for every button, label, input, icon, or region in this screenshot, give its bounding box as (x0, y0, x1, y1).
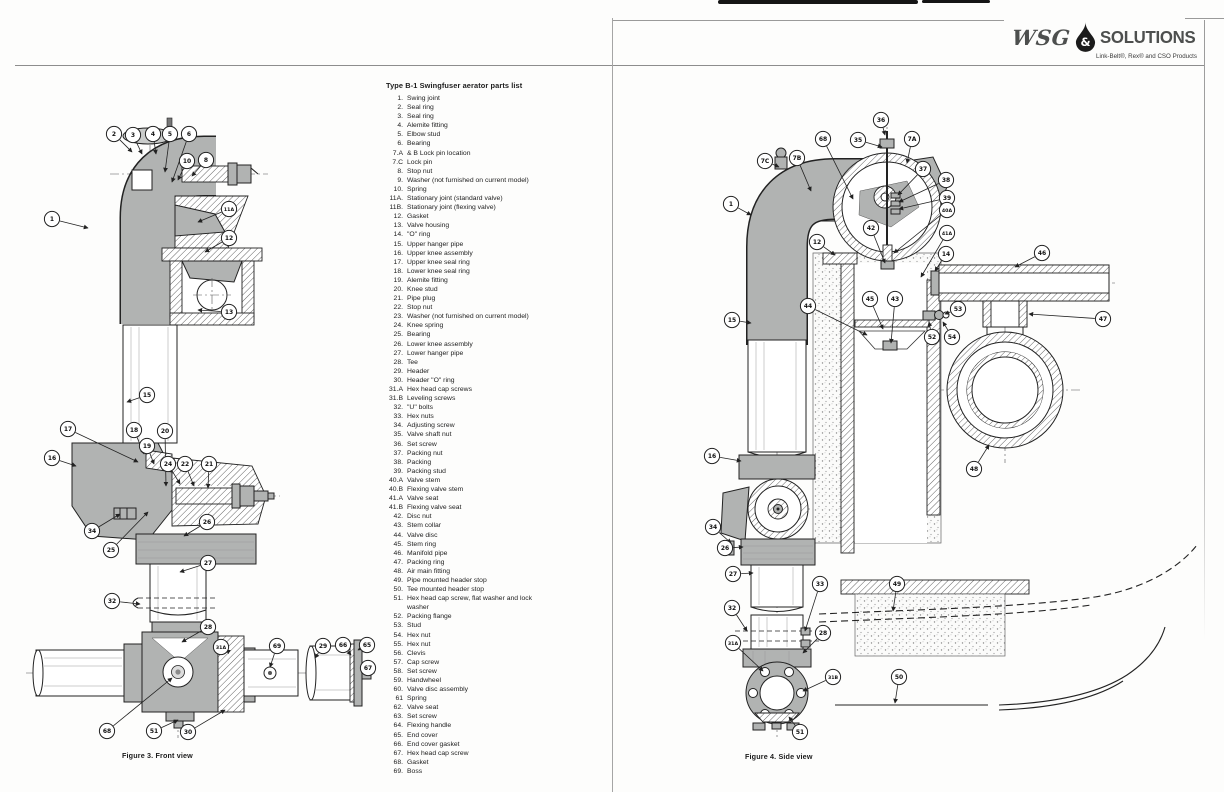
callout-35: 35 (850, 132, 882, 147)
callout-31A: 31A (213, 639, 228, 654)
svg-text:16: 16 (708, 453, 716, 460)
part-number: 23. (386, 312, 403, 321)
svg-text:3: 3 (131, 132, 135, 139)
part-label: Washer (not furnished on current model) (407, 312, 553, 321)
part-number: 22. (386, 303, 403, 312)
part-label: Hex head cap screw, flat washer and lock… (407, 594, 553, 612)
svg-text:38: 38 (942, 177, 950, 184)
part-number: 10. (386, 185, 403, 194)
part-label: Bearing (407, 139, 553, 148)
part-number: 12. (386, 212, 403, 221)
parts-list-item: 48. Air main fitting (386, 567, 614, 576)
part-label: Hex head cap screw (407, 749, 553, 758)
parts-list-item: 53. Stud (386, 621, 614, 630)
part-label: Tee mounted header stop (407, 585, 553, 594)
part-label: "U" bolts (407, 403, 553, 412)
svg-text:34: 34 (88, 528, 96, 535)
svg-text:68: 68 (103, 728, 111, 735)
figure4-side-view-drawing: 36357A687C7B37383940A41A1121442444543155… (695, 95, 1210, 745)
parts-list-item: 56. Clevis (386, 649, 614, 658)
part-label: Stationary joint (standard valve) (407, 194, 553, 203)
part-number: 55. (386, 640, 403, 649)
stem-collar (883, 341, 897, 350)
parts-list-item: 64. Flexing handle (386, 721, 614, 730)
part-number: 25. (386, 330, 403, 339)
parts-list-item: 7.C Lock pin (386, 158, 614, 167)
parts-list-item: 60. Valve disc assembly (386, 685, 614, 694)
part-label: Pipe mounted header stop (407, 576, 553, 585)
part-number: 28. (386, 358, 403, 367)
parts-list-item: 44. Valve disc (386, 531, 614, 540)
callout-47: 47 (1029, 311, 1111, 326)
part-number: 40.B (386, 485, 403, 494)
parts-list-item: 36. Set screw (386, 440, 614, 449)
part-label: & B Lock pin location (407, 149, 553, 158)
top-edge-dash-right (1185, 18, 1224, 19)
parts-list-item: 69. Boss (386, 767, 614, 776)
callout-12: 12 (809, 234, 835, 255)
part-label: Tee (407, 358, 553, 367)
part-label: Header (407, 367, 553, 376)
part-label: End cover (407, 731, 553, 740)
svg-text:42: 42 (867, 225, 875, 232)
part-label: Flexing valve seat (407, 503, 553, 512)
svg-text:15: 15 (143, 392, 151, 399)
parts-list-item: 6. Bearing (386, 139, 614, 148)
svg-text:5: 5 (168, 131, 172, 138)
svg-text:69: 69 (273, 643, 281, 650)
part-number: 44. (386, 531, 403, 540)
parts-list-item: 34. Adjusting screw (386, 421, 614, 430)
parts-list-item: 9. Washer (not furnished on current mode… (386, 176, 614, 185)
parts-list-item: 61 Spring (386, 694, 614, 703)
part-label: Set screw (407, 712, 553, 721)
part-label: Spring (407, 694, 553, 703)
part-label: Lock pin (407, 158, 553, 167)
parts-list-item: 37. Packing nut (386, 449, 614, 458)
svg-text:18: 18 (130, 427, 138, 434)
part-number: 50. (386, 585, 403, 594)
adjusting-screw (114, 508, 136, 519)
part-label: Stem ring (407, 540, 553, 549)
parts-list-item: 38. Packing (386, 458, 614, 467)
svg-text:13: 13 (225, 309, 233, 316)
part-label: Flexing handle (407, 721, 553, 730)
part-label: Upper knee assembly (407, 249, 553, 258)
svg-text:51: 51 (150, 728, 158, 735)
end-cover-gasket (350, 644, 354, 702)
callout-48: 48 (966, 445, 989, 477)
part-number: 1. (386, 94, 403, 103)
parts-list-item: 5. Elbow stud (386, 130, 614, 139)
part-number: 69. (386, 767, 403, 776)
logo-tagline: Link-Belt®, Rex® and CSO Products (1007, 53, 1199, 60)
part-label: Hex nuts (407, 412, 553, 421)
part-label: Spring (407, 185, 553, 194)
part-number: 33. (386, 412, 403, 421)
svg-text:43: 43 (891, 296, 899, 303)
callout-26: 26 (717, 540, 743, 555)
part-number: 14. (386, 230, 403, 239)
svg-text:27: 27 (204, 560, 212, 567)
part-label: Flexing valve stem (407, 485, 553, 494)
parts-list-title: Type B-1 Swingfuser aerator parts list (386, 81, 614, 90)
logo-ampersand: & (1080, 35, 1090, 49)
part-number: 21. (386, 294, 403, 303)
part-label: Lower knee seal ring (407, 267, 553, 276)
svg-text:7C: 7C (761, 158, 770, 165)
svg-text:46: 46 (1038, 250, 1046, 257)
parts-list-item: 45. Stem ring (386, 540, 614, 549)
part-number: 13. (386, 221, 403, 230)
svg-text:22: 22 (181, 461, 189, 468)
svg-text:50: 50 (895, 674, 903, 681)
pipe-plug (254, 491, 268, 501)
parts-list-item: 11A. Stationary joint (standard valve) (386, 194, 614, 203)
parts-list-item: 40.B Flexing valve stem (386, 485, 614, 494)
part-number: 5. (386, 130, 403, 139)
housing-gasket (823, 253, 857, 264)
svg-text:68: 68 (819, 136, 827, 143)
part-number: 27. (386, 349, 403, 358)
part-label: Pipe plug (407, 294, 553, 303)
svg-text:66: 66 (339, 642, 347, 649)
svg-text:35: 35 (854, 137, 862, 144)
svg-text:53: 53 (954, 306, 962, 313)
part-label: Knee stud (407, 285, 553, 294)
part-number: 63. (386, 712, 403, 721)
parts-list-item: 18. Lower knee seal ring (386, 267, 614, 276)
part-number: 15. (386, 240, 403, 249)
parts-list-item: 41.A Valve seat (386, 494, 614, 503)
svg-text:16: 16 (48, 455, 56, 462)
part-number: 36. (386, 440, 403, 449)
svg-text:31A: 31A (728, 641, 739, 647)
part-label: Swing joint (407, 94, 553, 103)
svg-text:15: 15 (728, 317, 736, 324)
svg-text:39: 39 (943, 195, 951, 202)
part-label: Bearing (407, 330, 553, 339)
part-number: 60. (386, 685, 403, 694)
part-number: 17. (386, 258, 403, 267)
part-label: Lower knee assembly (407, 340, 553, 349)
part-label: Stem collar (407, 521, 553, 530)
svg-text:19: 19 (143, 443, 151, 450)
part-label: Packing ring (407, 558, 553, 567)
top-edge-rule-right (612, 20, 1004, 21)
part-number: 66. (386, 740, 403, 749)
parts-list-item: 43. Stem collar (386, 521, 614, 530)
svg-text:31A: 31A (216, 645, 227, 651)
parts-list-item: 50. Tee mounted header stop (386, 585, 614, 594)
part-number: 7.A (386, 149, 403, 158)
parts-list-item: 17. Upper knee seal ring (386, 258, 614, 267)
part-label: Lower hanger pipe (407, 349, 553, 358)
callout-46: 46 (1015, 245, 1050, 267)
part-label: Alemite fitting (407, 276, 553, 285)
svg-text:27: 27 (729, 571, 737, 578)
svg-text:29: 29 (319, 643, 327, 650)
part-label: Stop nut (407, 167, 553, 176)
hanger-pipe-side (739, 340, 815, 479)
part-number: 40.A (386, 476, 403, 485)
part-label: Adjusting screw (407, 421, 553, 430)
svg-text:6: 6 (187, 131, 191, 138)
svg-text:47: 47 (1099, 316, 1107, 323)
part-label: Valve shaft nut (407, 430, 553, 439)
valve-housing (170, 261, 254, 325)
part-label: Valve seat (407, 494, 553, 503)
part-number: 30. (386, 376, 403, 385)
svg-text:8: 8 (204, 157, 208, 164)
part-number: 31.B (386, 394, 403, 403)
svg-text:7B: 7B (793, 155, 802, 162)
header-rule-left (15, 65, 612, 66)
parts-list-item: 35. Valve shaft nut (386, 430, 614, 439)
parts-list-item: 20. Knee stud (386, 285, 614, 294)
figure3-front-view-drawing: 23456108111A1213151718192024222116342526… (20, 110, 385, 755)
part-number: 58. (386, 667, 403, 676)
parts-list-item: 19. Alemite fitting (386, 276, 614, 285)
part-label: Packing (407, 458, 553, 467)
callout-31B: 31B (803, 669, 841, 691)
part-number: 42. (386, 512, 403, 521)
parts-list-item: 22. Stop nut (386, 303, 614, 312)
part-label: Gasket (407, 212, 553, 221)
lower-knee-band (741, 539, 815, 565)
part-label: Handwheel (407, 676, 553, 685)
svg-text:25: 25 (107, 547, 115, 554)
part-label: Header "O" ring (407, 376, 553, 385)
parts-list-item: 4. Alemite fitting (386, 121, 614, 130)
part-label: Stationary joint (flexing valve) (407, 203, 553, 212)
svg-text:26: 26 (203, 519, 211, 526)
scan-smudge (718, 0, 918, 4)
part-number: 53. (386, 621, 403, 630)
upper-knee-clamp (739, 455, 815, 479)
part-number: 35. (386, 430, 403, 439)
parts-list-item: 27. Lower hanger pipe (386, 349, 614, 358)
parts-list-item: 12. Gasket (386, 212, 614, 221)
part-label: Packing flange (407, 612, 553, 621)
part-number: 16. (386, 249, 403, 258)
part-number: 9. (386, 176, 403, 185)
parts-list-item: 59. Handwheel (386, 676, 614, 685)
svg-text:41A: 41A (942, 231, 953, 237)
part-label: Upper hanger pipe (407, 240, 553, 249)
droplet-icon: & (1074, 22, 1097, 53)
part-number: 31.A (386, 385, 403, 394)
parts-list-item: 32. "U" bolts (386, 403, 614, 412)
callout-1: 1 (44, 211, 88, 228)
part-number: 8. (386, 167, 403, 176)
upper-knee-assembly (72, 443, 274, 540)
parts-list-item: 21. Pipe plug (386, 294, 614, 303)
parts-list-item: 52. Packing flange (386, 612, 614, 621)
svg-text:32: 32 (108, 598, 116, 605)
svg-text:32: 32 (728, 605, 736, 612)
svg-text:67: 67 (364, 665, 372, 672)
part-label: Cap screw (407, 658, 553, 667)
part-number: 54. (386, 631, 403, 640)
part-label: "O" ring (407, 230, 553, 239)
part-number: 19. (386, 276, 403, 285)
svg-text:65: 65 (363, 642, 371, 649)
svg-text:4: 4 (151, 131, 155, 138)
parts-list-item: 29. Header (386, 367, 614, 376)
part-number: 37. (386, 449, 403, 458)
svg-text:48: 48 (970, 466, 978, 473)
parts-list-item: 25. Bearing (386, 330, 614, 339)
logo-solutions-text: SOLUTIONS (1100, 27, 1195, 48)
lower-pipe-side (735, 565, 819, 667)
wsg-solutions-logo: WSG & SOLUTIONS Link-Belt®, Rex® and CSO… (1007, 22, 1199, 62)
o-ring-step (931, 271, 939, 295)
svg-text:31B: 31B (828, 675, 839, 681)
part-label: Clevis (407, 649, 553, 658)
callout-33: 33 (805, 576, 828, 631)
parts-list-item: 10. Spring (386, 185, 614, 194)
part-label: Valve housing (407, 221, 553, 230)
parts-list-item: 3. Seal ring (386, 112, 614, 121)
tee-bottom-screw (174, 721, 183, 728)
part-label: Knee spring (407, 321, 553, 330)
parts-list-item: 11B. Stationary joint (flexing valve) (386, 203, 614, 212)
part-number: 24. (386, 321, 403, 330)
part-number: 32. (386, 403, 403, 412)
svg-text:10: 10 (183, 158, 191, 165)
parts-list-item: 26. Lower knee assembly (386, 340, 614, 349)
part-number: 6. (386, 139, 403, 148)
parts-list-item: 49. Pipe mounted header stop (386, 576, 614, 585)
logo-wsg-text: WSG (1011, 25, 1072, 50)
part-label: Washer (not furnished on current model) (407, 176, 553, 185)
part-label: Boss (407, 767, 553, 776)
svg-text:45: 45 (866, 296, 874, 303)
part-label: End cover gasket (407, 740, 553, 749)
part-label: Stud (407, 621, 553, 630)
part-number: 64. (386, 721, 403, 730)
parts-list-item: 33. Hex nuts (386, 412, 614, 421)
part-number: 48. (386, 567, 403, 576)
figure3-caption: Figure 3. Front view (122, 751, 193, 760)
parts-list-item: 67. Hex head cap screw (386, 749, 614, 758)
part-number: 62. (386, 703, 403, 712)
parts-list-item: 46. Manifold pipe (386, 549, 614, 558)
part-number: 20. (386, 285, 403, 294)
header-rule-right (612, 65, 1205, 66)
valve-seat (855, 320, 929, 327)
callout-16: 16 (44, 450, 76, 466)
part-number: 47. (386, 558, 403, 567)
flange-screw (772, 723, 781, 729)
parts-list-item: 30. Header "O" ring (386, 376, 614, 385)
parts-list-item: 14. "O" ring (386, 230, 614, 239)
parts-list-item: 28. Tee (386, 358, 614, 367)
knee-side-bracket (721, 487, 749, 541)
parts-list-item: 39. Packing stud (386, 467, 614, 476)
part-number: 29. (386, 367, 403, 376)
parts-list-item: 51. Hex head cap screw, flat washer and … (386, 594, 614, 612)
part-number: 7.C (386, 158, 403, 167)
part-number: 18. (386, 267, 403, 276)
scan-smudge-2 (922, 0, 990, 3)
part-number: 3. (386, 112, 403, 121)
part-number: 51. (386, 594, 403, 612)
parts-list-item: 2. Seal ring (386, 103, 614, 112)
part-number: 43. (386, 521, 403, 530)
parts-list-item: 40.A Valve stem (386, 476, 614, 485)
svg-text:20: 20 (161, 428, 169, 435)
part-number: 11B. (386, 203, 403, 212)
svg-text:2: 2 (112, 131, 116, 138)
parts-list-item: 8. Stop nut (386, 167, 614, 176)
part-label: Hex head cap screws (407, 385, 553, 394)
svg-text:1: 1 (729, 201, 733, 208)
part-number: 2. (386, 103, 403, 112)
part-number: 26. (386, 340, 403, 349)
part-label: Leveling screws (407, 394, 553, 403)
callout-67: 67 (360, 660, 375, 675)
parts-list-item: 31.B Leveling screws (386, 394, 614, 403)
part-label: Packing stud (407, 467, 553, 476)
parts-list-item: 63. Set screw (386, 712, 614, 721)
svg-text:24: 24 (164, 461, 172, 468)
parts-list-item: 31.A Hex head cap screws (386, 385, 614, 394)
stop-nut (232, 484, 240, 508)
part-number: 56. (386, 649, 403, 658)
parts-list: Type B-1 Swingfuser aerator parts list 1… (386, 81, 614, 776)
svg-text:49: 49 (893, 581, 901, 588)
svg-text:12: 12 (813, 239, 821, 246)
svg-text:1: 1 (50, 216, 54, 223)
svg-text:12: 12 (225, 235, 233, 242)
tee-end-flange (746, 662, 808, 730)
part-label: Valve disc assembly (407, 685, 553, 694)
parts-list-item: 15. Upper hanger pipe (386, 240, 614, 249)
svg-text:34: 34 (709, 524, 717, 531)
part-label: Packing nut (407, 449, 553, 458)
parts-list-item: 41.B Flexing valve seat (386, 503, 614, 512)
scanned-manual-page: WSG & SOLUTIONS Link-Belt®, Rex® and CSO… (0, 0, 1224, 792)
parts-list-item: 68. Gasket (386, 758, 614, 767)
svg-text:36: 36 (877, 117, 885, 124)
part-number: 41.B (386, 503, 403, 512)
part-number: 45. (386, 540, 403, 549)
part-label: Valve stem (407, 476, 553, 485)
knee-stud (176, 488, 232, 504)
part-label: Gasket (407, 758, 553, 767)
lower-knee-assembly (136, 534, 256, 564)
parts-list-item: 42. Disc nut (386, 512, 614, 521)
air-main-ring (947, 332, 1063, 448)
parts-list-item: 1. Swing joint (386, 94, 614, 103)
callout-27: 27 (725, 566, 753, 581)
figure4-caption: Figure 4. Side view (745, 752, 813, 761)
svg-text:28: 28 (204, 624, 212, 631)
parts-list-item: 66. End cover gasket (386, 740, 614, 749)
part-number: 46. (386, 549, 403, 558)
svg-text:21: 21 (205, 461, 213, 468)
parts-list-item: 13. Valve housing (386, 221, 614, 230)
parts-list-item: 55. Hex nut (386, 640, 614, 649)
part-number: 39. (386, 467, 403, 476)
callout-32: 32 (724, 600, 747, 631)
svg-text:54: 54 (948, 334, 956, 341)
packing-flange-fitting (923, 311, 949, 321)
part-number: 52. (386, 612, 403, 621)
part-number: 4. (386, 121, 403, 130)
